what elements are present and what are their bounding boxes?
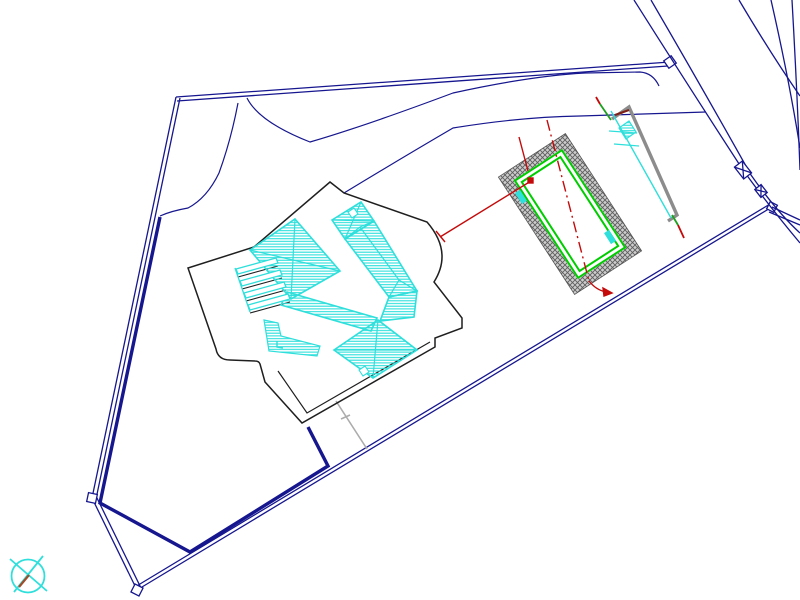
road <box>634 0 800 243</box>
section-marker-top <box>596 97 611 120</box>
property-boundary <box>87 56 778 596</box>
site-plan-viewport[interactable] <box>0 0 800 600</box>
ladder-box <box>619 121 636 139</box>
centerline-arrowhead <box>603 288 612 296</box>
boundary-southwest-inner <box>96 496 141 588</box>
driveway-edge-line <box>247 72 659 142</box>
tree-symbol <box>10 556 47 593</box>
roof-east-link <box>380 291 417 321</box>
section-marker-red <box>678 225 684 238</box>
section-marker-green <box>600 104 611 120</box>
drawing-canvas[interactable] <box>0 0 800 600</box>
boundary-west-outer <box>92 97 176 498</box>
dimension-line <box>440 181 531 237</box>
boundary-top-inner <box>177 66 668 101</box>
boundary-southeast-inner <box>135 204 770 587</box>
retaining-wall <box>612 107 677 221</box>
roof-l-terrace <box>264 320 320 356</box>
boundary-southeast-outer <box>137 207 772 590</box>
utility-valve-symbol <box>734 161 751 179</box>
boundary-west-inner <box>96 98 180 499</box>
site-curves <box>160 72 706 216</box>
road-edge-line <box>739 0 800 96</box>
dimension-end-marker <box>528 178 533 183</box>
boundary-top-outer <box>176 62 670 97</box>
road-edge-line <box>651 0 800 233</box>
tree-trunk <box>19 575 29 587</box>
footpath-line <box>336 401 367 449</box>
boundary-corner-marker <box>87 493 98 504</box>
roof-court-strip <box>281 292 377 331</box>
swimming-pool <box>436 120 642 296</box>
section-marker-bottom <box>672 215 684 238</box>
wall-ladder-symbol <box>609 121 639 146</box>
footpath <box>336 401 367 449</box>
boundary-corner-marker <box>131 584 143 596</box>
house-roofs <box>235 202 417 378</box>
section-marker-red <box>596 97 600 104</box>
roof-east-wing <box>345 221 417 297</box>
